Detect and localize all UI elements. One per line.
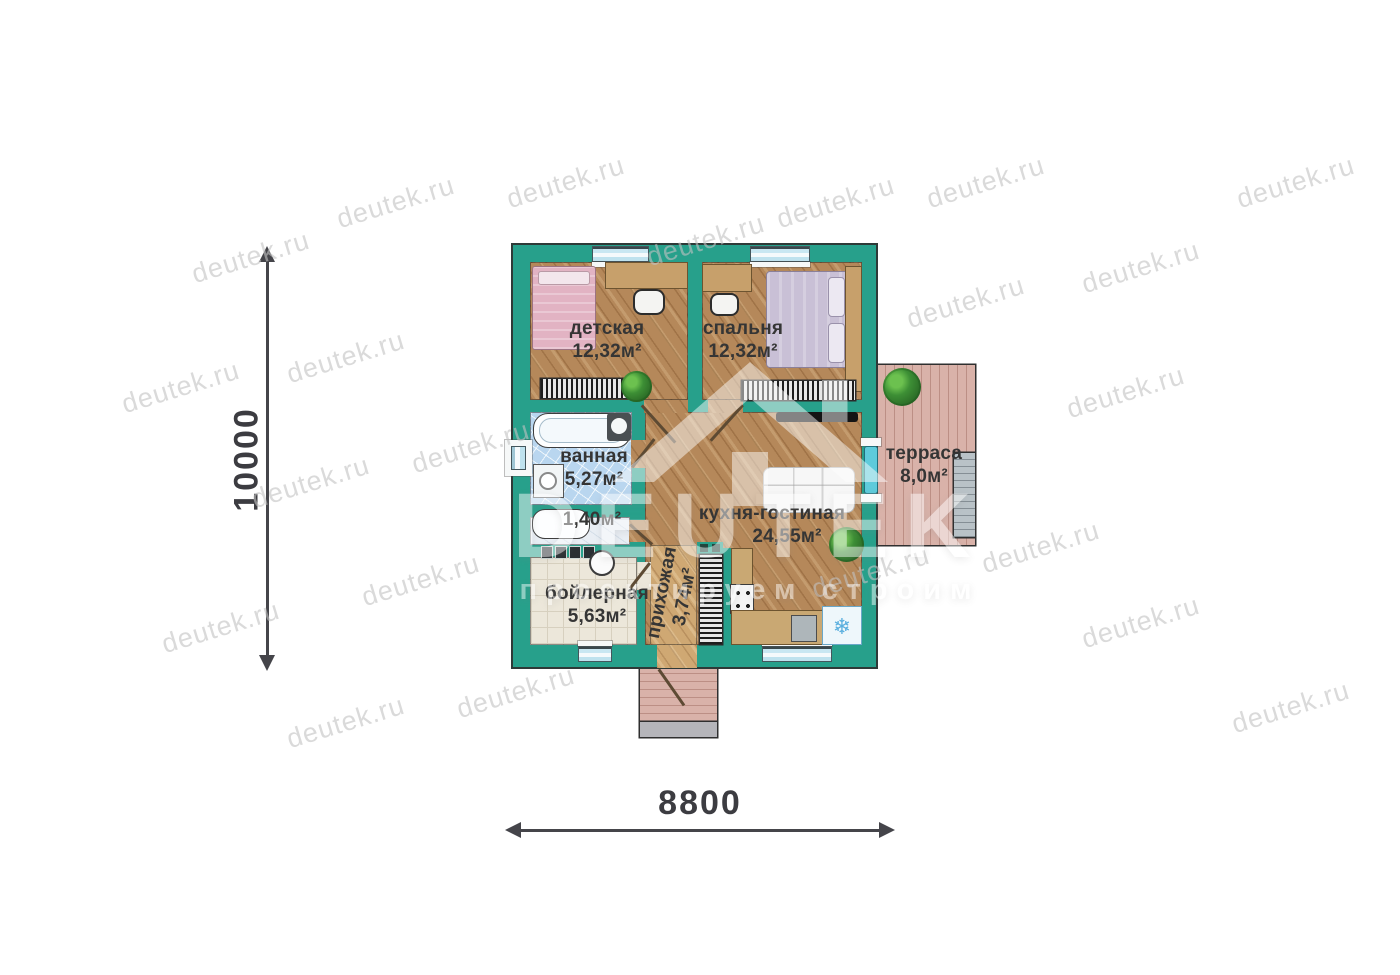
watermark-text: deutek.ru <box>503 150 628 215</box>
bedroom-desk <box>702 264 752 292</box>
room-area: 8,0м² <box>882 466 966 489</box>
bedroom-label: спальня 12,32м² <box>688 318 798 364</box>
window-sill <box>750 262 810 267</box>
watermark-text: deutek.ru <box>358 548 483 613</box>
watermark-text: deutek.ru <box>118 355 243 420</box>
watermark-text: deutek.ru <box>773 170 898 235</box>
bedroom-pillow <box>828 323 845 363</box>
radiator <box>742 381 855 400</box>
wall-unit <box>569 546 581 559</box>
room-area: 5,27м² <box>538 469 650 492</box>
watermark-text: deutek.ru <box>1228 675 1353 740</box>
arrow-right-icon <box>879 822 895 838</box>
watermark-text: deutek.ru <box>1063 360 1188 425</box>
bathroom-label: ванная 5,27м² <box>538 446 650 492</box>
watermark-text: deutek.ru <box>188 225 313 290</box>
window <box>592 246 649 262</box>
watermark-text: deutek.ru <box>158 595 283 660</box>
watermark-text: deutek.ru <box>903 270 1028 335</box>
watermark-text: deutek.ru <box>333 170 458 235</box>
watermark-text: deutek.ru <box>978 515 1103 580</box>
watermark-text: deutek.ru <box>1078 235 1203 300</box>
bedroom-wardrobe <box>845 266 862 392</box>
radiator <box>700 555 722 644</box>
watermark-text: deutek.ru <box>1078 590 1203 655</box>
watermark-text: deutek.ru <box>283 325 408 390</box>
nursery-desk <box>605 262 688 289</box>
arrow-down-icon <box>259 655 275 671</box>
arrow-left-icon <box>505 822 521 838</box>
nursery-pillow <box>538 271 590 285</box>
door-jamb <box>861 438 881 446</box>
room-name: ванная <box>538 446 650 469</box>
room-name: кухня-гостиная <box>682 503 862 526</box>
tv <box>776 412 858 422</box>
room-area: 24,55м² <box>682 526 862 549</box>
window <box>762 646 832 662</box>
watermark-text: deutek.ru <box>453 660 578 725</box>
nursery-chair <box>633 289 665 315</box>
porch-step <box>640 722 717 737</box>
wall-unit <box>555 546 567 559</box>
kitchen-sink <box>791 615 817 642</box>
plant-icon <box>621 371 652 402</box>
room-name: детская <box>542 318 672 341</box>
room-name: терраса <box>882 443 966 466</box>
nursery-door-opening <box>644 400 688 413</box>
plant-icon <box>883 368 921 406</box>
room-name: спальня <box>688 318 798 341</box>
bedroom-chair <box>710 293 739 316</box>
nursery-label: детская 12,32м² <box>542 318 672 364</box>
kitchen-label: кухня-гостиная 24,55м² <box>682 503 862 549</box>
wc-label: 1,40м² <box>552 509 632 532</box>
boiler-tank <box>589 550 615 576</box>
width-dimension-label: 8800 <box>640 784 760 823</box>
terrace-sliding-door <box>864 446 878 494</box>
wall-unit <box>541 546 553 559</box>
horizontal-dimension-line <box>514 829 886 832</box>
room-area: 1,40м² <box>552 509 632 532</box>
floor-plan-page: deutek.ru deutek.ru deutek.ru deutek.ru … <box>0 0 1400 975</box>
radiator <box>541 379 628 398</box>
room-area: 5,63м² <box>533 606 661 629</box>
sink-bowl <box>611 418 627 434</box>
room-area: 12,32м² <box>542 341 672 364</box>
window <box>578 646 612 662</box>
window-sill <box>578 641 612 646</box>
door-jamb <box>861 494 881 502</box>
watermark-text: deutek.ru <box>283 690 408 755</box>
window <box>750 246 810 262</box>
room-area: 12,32м² <box>688 341 798 364</box>
refrigerator: ❄ <box>822 606 862 645</box>
watermark-text: deutek.ru <box>923 150 1048 215</box>
boiler-label: бойлерная 5,63м² <box>533 583 661 629</box>
terrace-label: терраса 8,0м² <box>882 443 966 489</box>
bedroom-pillow <box>828 277 845 317</box>
room-name: бойлерная <box>533 583 661 606</box>
watermark-text: deutek.ru <box>1233 150 1358 215</box>
